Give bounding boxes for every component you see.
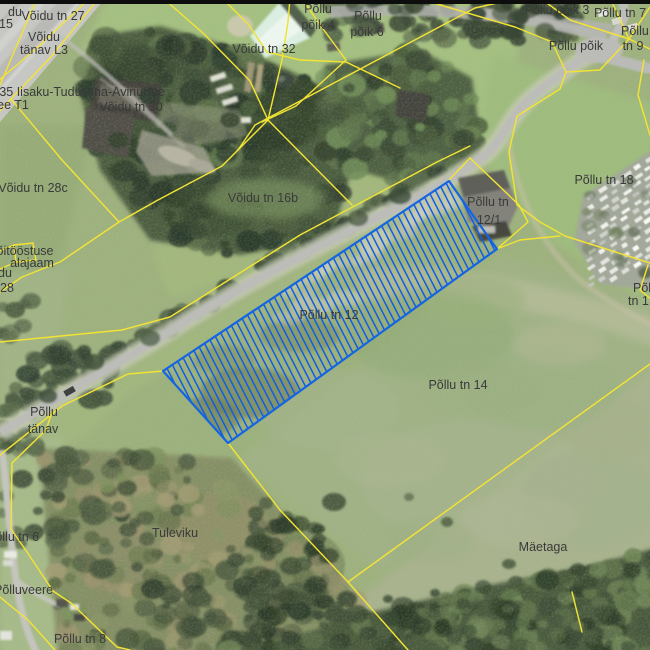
svg-text:Põllu tn 7: Põllu tn 7 [594, 6, 646, 20]
svg-text:Põllu põik: Põllu põik [549, 39, 604, 53]
svg-text:Põllu: Põllu [304, 2, 332, 16]
svg-text:Võidu tn 27: Võidu tn 27 [21, 9, 84, 23]
svg-text:Võidu tn 32: Võidu tn 32 [232, 42, 295, 56]
svg-text:tn 1: tn 1 [628, 294, 649, 308]
svg-text:tänav L3: tänav L3 [20, 43, 68, 57]
svg-text:põik 4: põik 4 [301, 18, 334, 32]
svg-text:alajaam: alajaam [10, 256, 54, 270]
svg-text:Võidu tn 16b: Võidu tn 16b [228, 191, 298, 205]
svg-text:Põlluveere: Põlluveere [0, 583, 53, 597]
svg-text:Põllu tn 12: Põllu tn 12 [299, 308, 358, 322]
svg-text:Põllu tn 14: Põllu tn 14 [428, 378, 487, 392]
svg-text:du: du [0, 266, 12, 280]
svg-text:Põllu tn 18: Põllu tn 18 [574, 173, 633, 187]
svg-text:Mäetaga: Mäetaga [519, 540, 568, 554]
svg-text:28: 28 [0, 281, 14, 295]
svg-text:põik 6: põik 6 [350, 25, 383, 39]
svg-text:Võidu tn 28c: Võidu tn 28c [0, 181, 68, 195]
svg-text:ee T1: ee T1 [0, 98, 29, 112]
svg-text:Põllu tn: Põllu tn [467, 195, 509, 209]
svg-text:Võidu tn 30: Võidu tn 30 [99, 100, 162, 114]
svg-text:Põllu: Põllu [30, 405, 58, 419]
svg-text:Põllu: Põllu [621, 24, 649, 38]
svg-text:Põllu: Põllu [354, 9, 382, 23]
svg-text:tänav: tänav [28, 422, 59, 436]
svg-text:Põllu tn 8: Põllu tn 8 [54, 632, 106, 646]
svg-text:12/1: 12/1 [477, 213, 501, 227]
svg-text:35 Iisaku-Tudulinna-Avinurme: 35 Iisaku-Tudulinna-Avinurme [0, 85, 165, 99]
svg-text:Võidu: Võidu [28, 30, 60, 44]
svg-text:Põllu põik 3: Põllu põik 3 [525, 3, 590, 17]
svg-text:Põllu tn 6: Põllu tn 6 [0, 530, 39, 544]
svg-text:Tuleviku: Tuleviku [152, 526, 198, 540]
svg-text:15: 15 [0, 17, 13, 31]
svg-text:tn 9: tn 9 [623, 39, 644, 53]
svg-text:Põllu: Põllu [633, 281, 650, 295]
